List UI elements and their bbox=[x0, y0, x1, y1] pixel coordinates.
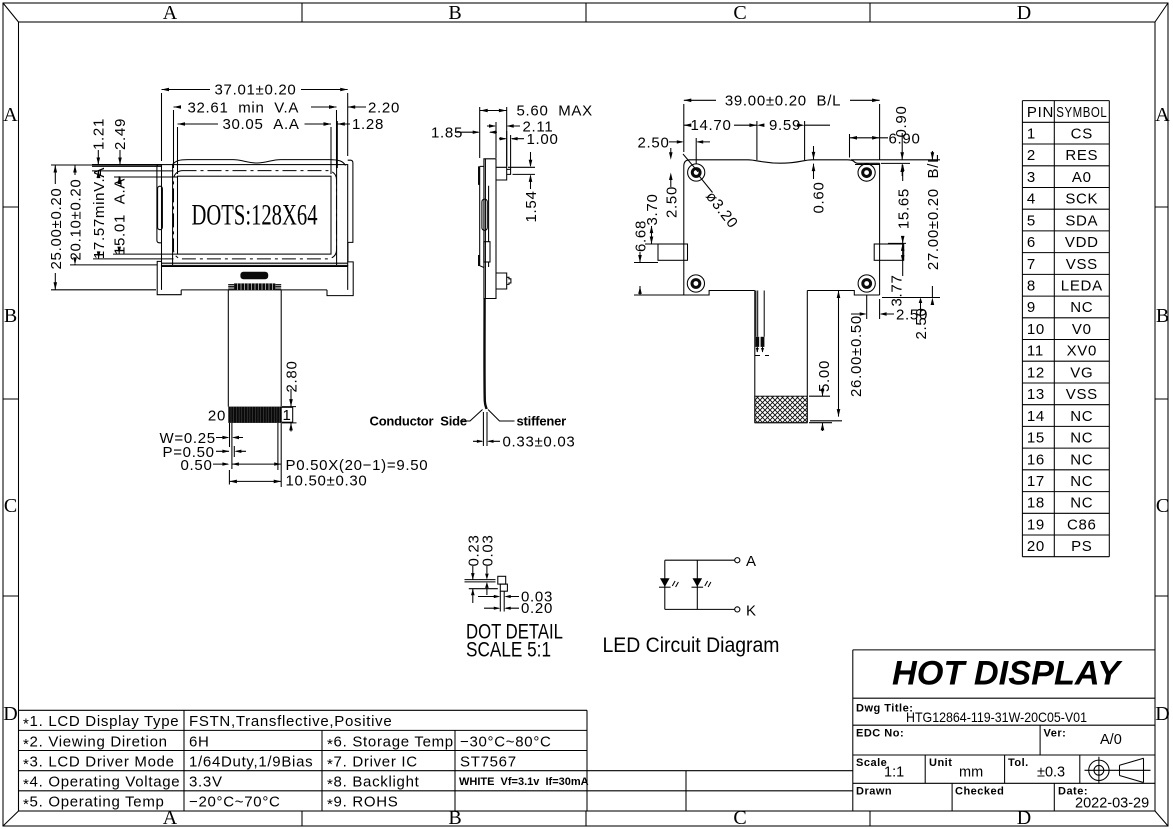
svg-text:1: 1 bbox=[1027, 126, 1036, 143]
svg-text:20: 20 bbox=[1027, 538, 1045, 555]
svg-text:XV0: XV0 bbox=[1067, 343, 1097, 360]
svg-text:VSS: VSS bbox=[1066, 256, 1098, 273]
svg-text:6H: 6H bbox=[189, 733, 210, 750]
svg-text:HOT DISPLAY: HOT DISPLAY bbox=[892, 655, 1123, 693]
svg-text:RES: RES bbox=[1065, 147, 1098, 164]
svg-text:6.68: 6.68 bbox=[633, 220, 650, 252]
svg-text:−30°C~80°C: −30°C~80°C bbox=[460, 733, 552, 750]
svg-text:P0.50X(20−1)=9.50: P0.50X(20−1)=9.50 bbox=[286, 457, 429, 474]
svg-text:A: A bbox=[746, 553, 757, 570]
svg-text:HTG12864-119-31W-20C05-V01: HTG12864-119-31W-20C05-V01 bbox=[906, 709, 1087, 725]
svg-text:2.20: 2.20 bbox=[368, 99, 400, 116]
svg-text:0.90: 0.90 bbox=[893, 106, 910, 138]
svg-text:*8. Backlight: *8. Backlight bbox=[327, 774, 420, 794]
svg-text:*9. ROHS: *9. ROHS bbox=[327, 794, 398, 814]
svg-text:DOTS:128X64: DOTS:128X64 bbox=[192, 199, 318, 232]
svg-text:D: D bbox=[1017, 807, 1031, 829]
svg-text:*6. Storage Temp: *6. Storage Temp bbox=[327, 733, 454, 753]
svg-text:V0: V0 bbox=[1072, 321, 1092, 338]
svg-text:17.57minV.A: 17.57minV.A bbox=[91, 167, 108, 259]
svg-text:C: C bbox=[733, 807, 746, 829]
svg-text:4: 4 bbox=[1027, 191, 1036, 208]
svg-text:14: 14 bbox=[1027, 408, 1045, 425]
svg-text:Drawn: Drawn bbox=[856, 786, 892, 798]
svg-text:1.21: 1.21 bbox=[90, 118, 107, 150]
svg-text:30.05 A.A: 30.05 A.A bbox=[222, 116, 299, 133]
svg-text:1.85: 1.85 bbox=[431, 125, 463, 142]
svg-text:2.49: 2.49 bbox=[112, 118, 129, 150]
svg-text:SCALE 5:1: SCALE 5:1 bbox=[466, 638, 551, 662]
svg-text:−20°C~70°C: −20°C~70°C bbox=[189, 794, 281, 811]
svg-text:*1. LCD Display Type: *1. LCD Display Type bbox=[23, 713, 179, 733]
svg-text:EDC No:: EDC No: bbox=[856, 727, 904, 739]
svg-text:1.00: 1.00 bbox=[527, 131, 559, 148]
svg-text:26.00±0.50: 26.00±0.50 bbox=[848, 315, 865, 397]
svg-text:27.00±0.20 B/L: 27.00±0.20 B/L bbox=[925, 154, 942, 270]
svg-text:39.00±0.20 B/L: 39.00±0.20 B/L bbox=[725, 92, 841, 109]
svg-text:20: 20 bbox=[208, 408, 226, 425]
svg-text:NC: NC bbox=[1070, 299, 1093, 316]
svg-text:C: C bbox=[1156, 495, 1169, 517]
svg-text:K: K bbox=[746, 603, 757, 620]
svg-text:PS: PS bbox=[1071, 538, 1092, 555]
svg-text:19: 19 bbox=[1027, 516, 1045, 533]
svg-text:PIN: PIN bbox=[1027, 104, 1054, 121]
svg-text:NC: NC bbox=[1070, 473, 1093, 490]
svg-text:2.50: 2.50 bbox=[913, 308, 930, 340]
svg-text:9.59: 9.59 bbox=[769, 117, 801, 134]
svg-text:CS: CS bbox=[1071, 126, 1093, 143]
svg-text:20.10±0.20: 20.10±0.20 bbox=[68, 179, 85, 261]
svg-text:15: 15 bbox=[1027, 430, 1045, 447]
svg-text:A0: A0 bbox=[1072, 169, 1092, 186]
svg-text:10.50±0.30: 10.50±0.30 bbox=[286, 473, 368, 490]
svg-text:3.3V: 3.3V bbox=[189, 774, 223, 791]
svg-text:16: 16 bbox=[1027, 451, 1045, 468]
svg-text:15.65: 15.65 bbox=[896, 188, 913, 229]
svg-text:NC: NC bbox=[1070, 408, 1093, 425]
svg-text:NC: NC bbox=[1070, 430, 1093, 447]
svg-text:FSTN,Transflective,Positive: FSTN,Transflective,Positive bbox=[189, 713, 392, 730]
svg-text:B: B bbox=[448, 2, 461, 24]
svg-text:18: 18 bbox=[1027, 495, 1045, 512]
svg-text:Dwg Title:: Dwg Title: bbox=[856, 703, 913, 715]
svg-text:SYMBOL: SYMBOL bbox=[1056, 104, 1107, 121]
svg-text:*3. LCD Driver Mode: *3. LCD Driver Mode bbox=[23, 753, 175, 773]
svg-text:*4. Operating Voltage: *4. Operating Voltage bbox=[23, 774, 180, 794]
svg-text:VSS: VSS bbox=[1066, 386, 1098, 403]
svg-text:2022-03-29: 2022-03-29 bbox=[1075, 796, 1149, 812]
svg-text:11: 11 bbox=[1027, 343, 1044, 360]
svg-text:Unit: Unit bbox=[929, 757, 952, 769]
svg-text:LED Circuit Diagram: LED Circuit Diagram bbox=[603, 634, 780, 657]
svg-text:3: 3 bbox=[1027, 169, 1036, 186]
svg-text:5.00: 5.00 bbox=[816, 360, 833, 392]
svg-text:WHITE Vf=3.1v If=30mA: WHITE Vf=3.1v If=30mA bbox=[459, 776, 589, 788]
svg-text:10: 10 bbox=[1027, 321, 1045, 338]
svg-text:0.33±0.03: 0.33±0.03 bbox=[503, 433, 576, 450]
svg-text:0.60: 0.60 bbox=[811, 182, 828, 214]
svg-text:*5. Operating Temp: *5. Operating Temp bbox=[23, 794, 165, 814]
svg-text:8: 8 bbox=[1027, 278, 1036, 295]
svg-text:A: A bbox=[163, 2, 178, 24]
svg-text:B: B bbox=[1156, 305, 1169, 327]
svg-text:1.54: 1.54 bbox=[523, 191, 540, 223]
svg-text:25.00±0.20: 25.00±0.20 bbox=[48, 188, 65, 270]
svg-text:ST7567: ST7567 bbox=[460, 753, 517, 770]
svg-text:2: 2 bbox=[1027, 147, 1036, 164]
svg-text:D: D bbox=[3, 703, 17, 725]
svg-text:2.80: 2.80 bbox=[284, 361, 301, 393]
svg-text:A: A bbox=[3, 104, 18, 126]
svg-text:Conductor Side: Conductor Side bbox=[370, 414, 467, 429]
svg-text:±0.3: ±0.3 bbox=[1037, 765, 1065, 781]
svg-text:0.50: 0.50 bbox=[181, 457, 213, 474]
svg-text:C: C bbox=[733, 2, 746, 24]
svg-text:Scale: Scale bbox=[856, 757, 887, 769]
svg-text:Tol.: Tol. bbox=[1008, 757, 1029, 769]
svg-text:mm: mm bbox=[959, 765, 983, 781]
svg-text:A: A bbox=[163, 807, 178, 829]
svg-text:B: B bbox=[4, 305, 17, 327]
svg-text:A: A bbox=[1155, 104, 1170, 126]
svg-text:stiffener: stiffener bbox=[517, 414, 567, 429]
svg-text:13: 13 bbox=[1027, 386, 1045, 403]
svg-text:7: 7 bbox=[1027, 256, 1036, 273]
svg-text:Checked: Checked bbox=[955, 786, 1004, 798]
svg-text:1: 1 bbox=[282, 407, 291, 424]
svg-text:SCK: SCK bbox=[1065, 191, 1098, 208]
svg-text:C: C bbox=[4, 495, 17, 517]
svg-text:5: 5 bbox=[1027, 212, 1036, 229]
svg-text:D: D bbox=[1017, 2, 1031, 24]
svg-text:9: 9 bbox=[1027, 299, 1036, 316]
svg-text:SDA: SDA bbox=[1065, 212, 1098, 229]
svg-text:32.61 min V.A: 32.61 min V.A bbox=[187, 99, 299, 116]
svg-text:2.50: 2.50 bbox=[638, 134, 670, 151]
svg-text:37.01±0.20: 37.01±0.20 bbox=[215, 82, 297, 99]
svg-text:5.60 MAX: 5.60 MAX bbox=[517, 103, 593, 120]
svg-text:NC: NC bbox=[1070, 495, 1093, 512]
svg-text:NC: NC bbox=[1070, 451, 1093, 468]
svg-text:6: 6 bbox=[1027, 234, 1036, 251]
svg-text:A/0: A/0 bbox=[1100, 732, 1122, 748]
svg-text:14.70: 14.70 bbox=[690, 117, 731, 134]
svg-text:15.01 A.A: 15.01 A.A bbox=[112, 178, 129, 255]
svg-text:0.20: 0.20 bbox=[521, 600, 553, 617]
svg-text:17: 17 bbox=[1027, 473, 1045, 490]
svg-text:1.28: 1.28 bbox=[352, 116, 384, 133]
svg-text:Ver:: Ver: bbox=[1044, 727, 1067, 739]
svg-text:LEDA: LEDA bbox=[1061, 278, 1103, 295]
svg-text:3.77: 3.77 bbox=[889, 275, 906, 307]
svg-text:*2. Viewing Diretion: *2. Viewing Diretion bbox=[23, 733, 168, 753]
svg-text:C86: C86 bbox=[1067, 516, 1097, 533]
svg-text:1/64Duty,1/9Bias: 1/64Duty,1/9Bias bbox=[189, 753, 313, 770]
svg-text:0.03: 0.03 bbox=[479, 535, 496, 567]
svg-text:D: D bbox=[1155, 703, 1169, 725]
svg-text:1:1: 1:1 bbox=[884, 765, 904, 781]
svg-text:2.50: 2.50 bbox=[663, 186, 680, 218]
svg-text:VG: VG bbox=[1070, 364, 1093, 381]
svg-text:12: 12 bbox=[1027, 364, 1045, 381]
svg-text:*7. Driver IC: *7. Driver IC bbox=[327, 753, 418, 773]
svg-text:VDD: VDD bbox=[1065, 234, 1099, 251]
